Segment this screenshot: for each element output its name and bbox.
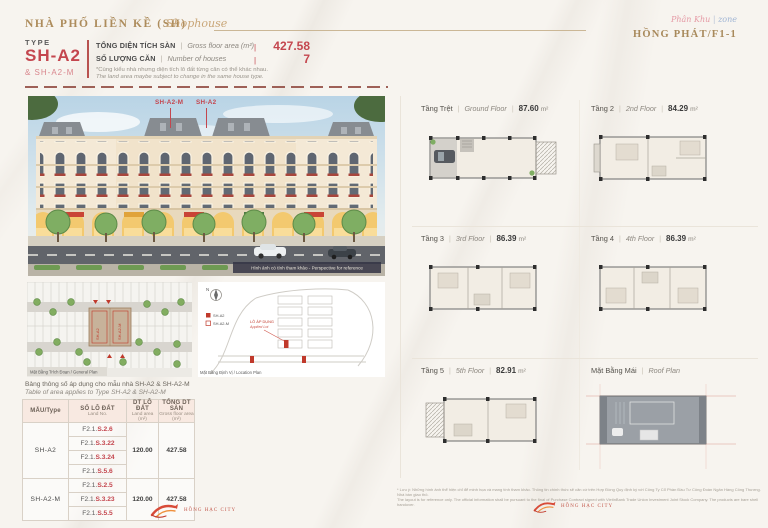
col-header-land-no: SỐ LÔ ĐẤTLand No. (69, 400, 127, 423)
zone-label-sep: | (713, 15, 716, 24)
col-header-type: MẪU/Type (23, 400, 69, 423)
label-leader-line (170, 108, 171, 128)
col-header-land-area: DT LÔ ĐẤTLand area (m²) (127, 400, 159, 423)
phoenix-bird-icon (533, 498, 557, 515)
lot-cell: F2.1.S.3.22 (69, 437, 127, 451)
table-header-row: MẪU/Type SỐ LÔ ĐẤTLand No. DT LÔ ĐẤTLand… (23, 400, 195, 423)
zone-label-en: zone (718, 15, 737, 24)
legend-label: SH-A2 (213, 313, 224, 318)
floor-header-roof: Mặt Bằng Mái| Roof Plan (591, 366, 751, 375)
project-logo-left: HỒNG HẠC CITY (150, 500, 236, 520)
lot-cell: F2.1.S.5.5 (69, 507, 127, 521)
land-area-cell: 120.00 (127, 423, 159, 479)
floor-header-3: Tầng 3| 3rd Floor| 86.39m² (421, 234, 581, 243)
column-divider-vertical (579, 100, 580, 470)
type-code-sub: & SH-A2-M (25, 68, 74, 77)
logo-text: HỒNG HẠC CITY (184, 508, 236, 513)
location-plan-caption: Mặt Bằng Định Vị / Location Plan (200, 370, 262, 375)
floor-plan-5 (416, 384, 566, 469)
disclaimer-line-vi: * Lưu ý: Những hình ảnh thể hiện chỉ để … (397, 487, 765, 497)
applied-lot-label-vi: LÔ ÁP DỤNG (250, 319, 274, 324)
header-dashed-divider (25, 86, 388, 88)
gross-floor-area-value: 427.58 (260, 39, 310, 53)
floor-plan-roof (586, 384, 736, 469)
table-intro-en: Table of area applies to Type SH-A2 & SH… (25, 389, 190, 397)
spec-label-en: Number of houses (167, 54, 226, 63)
panel-divider-vertical (400, 96, 401, 478)
spec-note-en: The land area maybe subject to change in… (96, 74, 276, 81)
location-plan-image: N SH-A2 SH-A2-M LÔ ÁP DỤNG Applied Lot M… (198, 282, 385, 377)
separator: | (161, 56, 163, 63)
general-plan-image: SH-A2 SH-A2-M Mặt Bằng Trích Đoạn / Gene… (27, 282, 192, 377)
page-title: NHÀ PHỐ LIỀN KỀ (SH) (25, 18, 187, 30)
floor-plan-3 (416, 252, 566, 337)
zone-label-vi: Phân Khu (671, 15, 710, 24)
general-plan-map: SH-A2 SH-A2-M Mặt Bằng Trích Đoạn / Gene… (27, 282, 192, 377)
block-mark: SH-A2-M (117, 324, 122, 340)
row-divider (412, 358, 758, 359)
row-divider (412, 226, 758, 227)
zone-label: Phân Khu | zone (671, 15, 737, 24)
legend-label: SH-A2-M (213, 321, 229, 326)
lot-cell: F2.1.S.2.5 (69, 479, 127, 493)
unit-label-sh-a2: SH-A2 (196, 99, 216, 106)
applied-lot-label-en: Applied Lot (249, 325, 269, 329)
rendering-caption: Hình ảnh có tính tham khảo - Perspective… (251, 266, 363, 271)
spec-value-gross-area: | 427.58 (254, 39, 310, 53)
lot-cell: F2.1.S.5.6 (69, 465, 127, 479)
brochure-page: NHÀ PHỐ LIỀN KỀ (SH) Shophouse Phân Khu … (0, 0, 768, 528)
title-rule (214, 30, 586, 31)
building-rendering: Hình ảnh có tính tham khảo - Perspective… (28, 96, 385, 276)
page-title-script: Shophouse (166, 17, 227, 30)
floor-header-4: Tầng 4| 4th Floor| 86.39m² (591, 234, 751, 243)
type-code: SH-A2 (25, 46, 81, 66)
block-mark: SH-A2 (95, 327, 100, 340)
type-divider (87, 40, 89, 78)
floor-header-2: Tầng 2| 2nd Floor| 84.29m² (591, 104, 751, 113)
unit-label-sh-a2-m: SH-A2-M (155, 99, 183, 106)
location-plan-map: N SH-A2 SH-A2-M LÔ ÁP DỤNG Applied Lot M… (198, 282, 385, 377)
table-intro-vi: Bảng thông số áp dụng cho mẫu nhà SH-A2 … (25, 381, 190, 389)
zone-name: HỒNG PHÁT/F1-1 (633, 29, 737, 40)
separator: | (254, 43, 256, 52)
floor-header-ground: Tầng Trệt| Ground Floor| 87.60m² (421, 104, 581, 113)
lot-cell: F2.1.S.2.6 (69, 423, 127, 437)
spec-label-vi: SỐ LƯỢNG CĂN (96, 54, 156, 63)
north-label: N (206, 287, 209, 292)
type-cell: SH-A2 (23, 423, 69, 479)
col-header-gross-area: TỔNG DT SÀNGross floor area (m²) (159, 400, 195, 423)
spec-note-vi: *Cùng kiểu nhà nhưng diện tích lô đất từ… (96, 67, 276, 74)
floor-header-5: Tầng 5| 5th Floor| 82.91m² (421, 366, 581, 375)
logo-text: HỒNG HẠC CITY (561, 504, 613, 509)
gross-area-cell: 427.58 (159, 423, 195, 479)
highlighted-lot-block: SH-A2 SH-A2-M (89, 308, 131, 346)
spec-value-houses: | 7 (254, 52, 310, 66)
number-of-houses-value: 7 (260, 52, 310, 66)
general-plan-caption: Mặt Bằng Trích Đoạn / General Plan (30, 370, 98, 375)
table-intro: Bảng thông số áp dụng cho mẫu nhà SH-A2 … (25, 381, 190, 396)
separator: | (254, 56, 256, 65)
floor-plan-ground (416, 122, 566, 207)
table-row: SH-A2 F2.1.S.2.6 120.00 427.58 (23, 423, 195, 437)
lot-cell: F2.1.S.3.23 (69, 493, 127, 507)
spec-label-en: Gross floor area (m²) (187, 41, 254, 50)
project-logo-right: HỒNG HẠC CITY (533, 498, 613, 515)
phoenix-bird-icon (150, 500, 180, 520)
spec-note: *Cùng kiểu nhà nhưng diện tích lô đất từ… (96, 67, 276, 81)
type-cell: SH-A2-M (23, 479, 69, 521)
lot-cell: F2.1.S.3.24 (69, 451, 127, 465)
label-leader-line (206, 108, 207, 128)
table-row: SH-A2-M F2.1.S.2.5 120.00 427.58 (23, 479, 195, 493)
spec-label-vi: TỔNG DIỆN TÍCH SÀN (96, 41, 175, 50)
separator: | (180, 43, 182, 50)
floor-plan-2 (586, 122, 736, 207)
floor-plan-4 (586, 252, 736, 337)
